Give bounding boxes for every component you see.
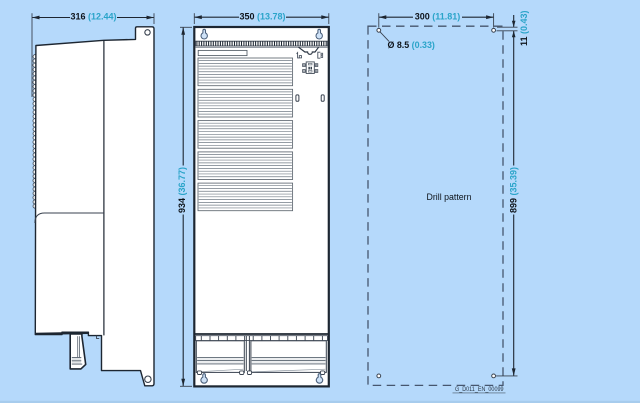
svg-text:Ø 8.5 (0.33): Ø 8.5 (0.33) (388, 40, 435, 50)
svg-text:Drill pattern: Drill pattern (427, 192, 472, 202)
svg-text:899 (35.39): 899 (35.39) (508, 167, 518, 213)
svg-text:934 (36.77): 934 (36.77) (177, 167, 187, 213)
svg-text:11 (0.43): 11 (0.43) (519, 10, 529, 46)
svg-text:350 (13.78): 350 (13.78) (239, 12, 285, 22)
svg-text:316 (12.44): 316 (12.44) (70, 12, 116, 22)
svg-text:G_D011_EN_00099: G_D011_EN_00099 (455, 386, 504, 393)
svg-text:300 (11.81): 300 (11.81) (415, 12, 461, 22)
